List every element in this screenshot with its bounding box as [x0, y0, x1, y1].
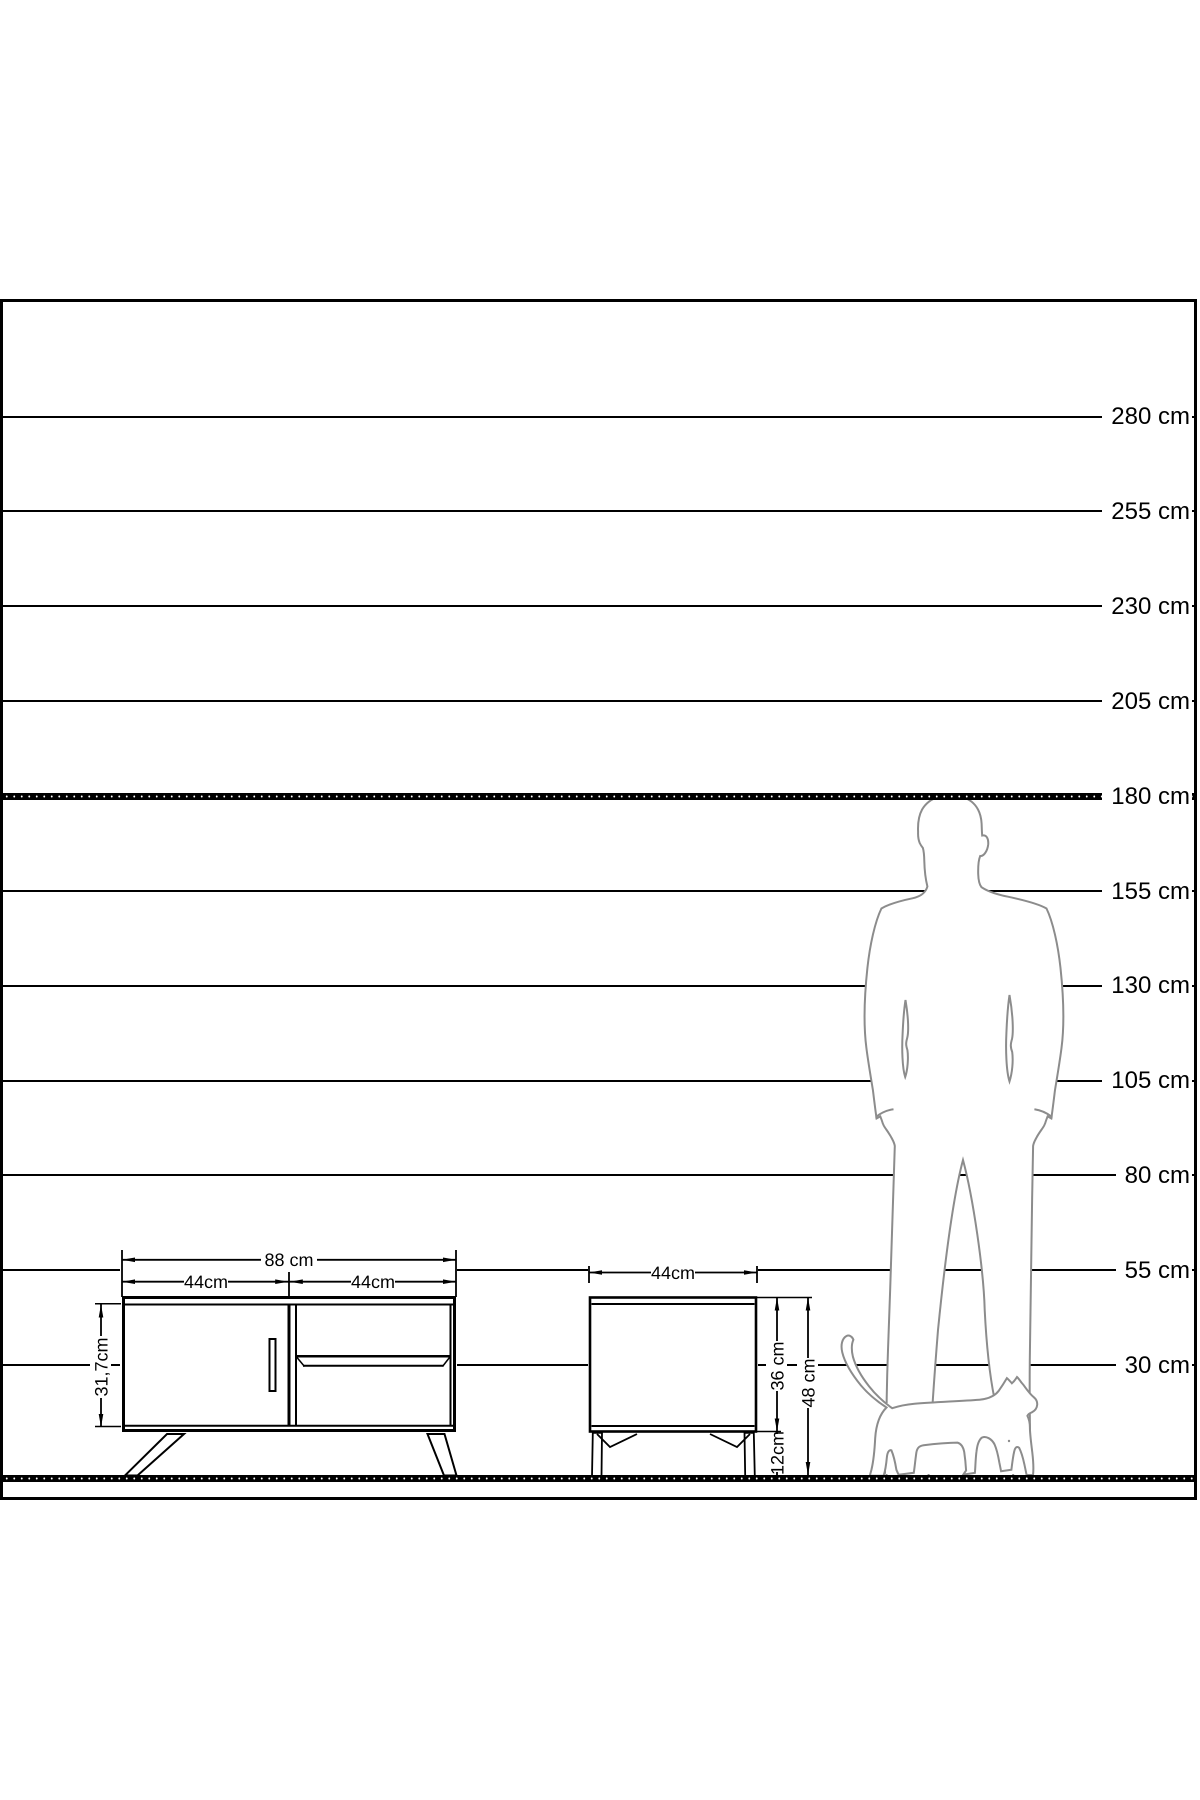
svg-text:48 cm: 48 cm — [799, 1358, 819, 1407]
svg-text:12cm: 12cm — [768, 1431, 788, 1475]
svg-text:44cm: 44cm — [651, 1263, 695, 1283]
svg-text:88 cm: 88 cm — [264, 1250, 313, 1270]
svg-text:44cm: 44cm — [184, 1272, 228, 1292]
svg-text:36 cm: 36 cm — [768, 1341, 788, 1390]
svg-text:44cm: 44cm — [351, 1272, 395, 1292]
svg-text:31,7cm: 31,7cm — [92, 1337, 112, 1396]
